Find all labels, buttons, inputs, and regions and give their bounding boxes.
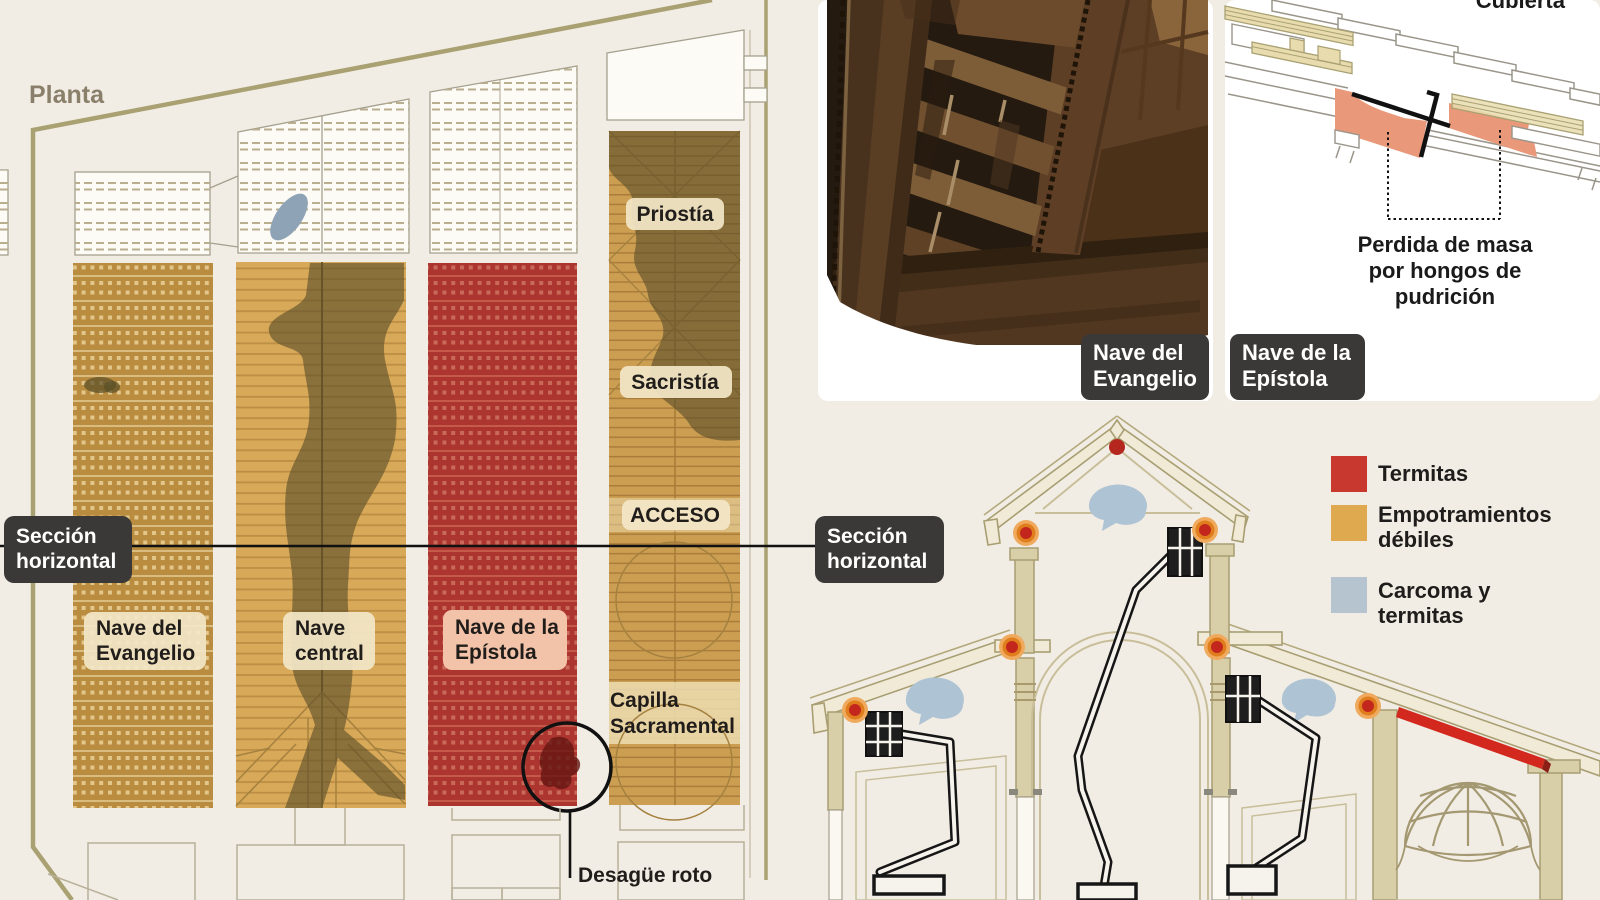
svg-text:Evangelio: Evangelio (1093, 366, 1197, 391)
svg-text:Epístola: Epístola (455, 641, 537, 664)
svg-text:ACCESO: ACCESO (630, 504, 720, 527)
svg-text:central: central (295, 642, 364, 665)
svg-text:Sección: Sección (827, 525, 908, 548)
svg-text:Nave de la: Nave de la (1242, 340, 1352, 365)
svg-text:pudrición: pudrición (1395, 284, 1495, 309)
svg-text:Desagüe roto: Desagüe roto (578, 864, 712, 887)
svg-text:Evangelio: Evangelio (96, 642, 195, 665)
svg-text:Nave de la: Nave de la (455, 616, 559, 639)
svg-text:termitas: termitas (1378, 603, 1464, 628)
svg-text:Planta: Planta (29, 81, 105, 109)
svg-text:por hongos de: por hongos de (1369, 258, 1522, 283)
svg-text:horizontal: horizontal (827, 550, 927, 573)
svg-text:Epístola: Epístola (1242, 366, 1328, 391)
svg-text:Nave: Nave (295, 617, 345, 640)
svg-text:Sacramental: Sacramental (610, 715, 735, 738)
svg-text:Cubierta: Cubierta (1476, 0, 1566, 13)
svg-text:Nave del: Nave del (1093, 340, 1184, 365)
svg-text:Carcoma y: Carcoma y (1378, 578, 1491, 603)
svg-text:Sacristía: Sacristía (631, 371, 719, 394)
svg-text:Empotramientos: Empotramientos (1378, 502, 1552, 527)
svg-text:Perdida de masa: Perdida de masa (1358, 232, 1534, 257)
svg-text:Capilla: Capilla (610, 689, 679, 712)
svg-text:horizontal: horizontal (16, 550, 116, 573)
svg-text:Nave del: Nave del (96, 617, 182, 640)
svg-text:débiles: débiles (1378, 527, 1454, 552)
svg-text:Termitas: Termitas (1378, 461, 1468, 486)
svg-text:Priostía: Priostía (636, 203, 713, 226)
svg-text:Sección: Sección (16, 525, 97, 548)
